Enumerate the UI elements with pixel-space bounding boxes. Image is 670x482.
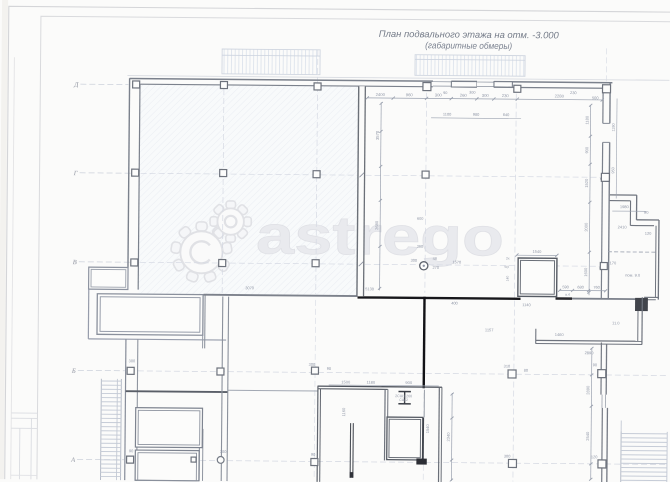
svg-text:1160: 1160 bbox=[341, 407, 346, 416]
svg-text:1540: 1540 bbox=[425, 424, 430, 434]
svg-text:400: 400 bbox=[451, 301, 458, 306]
svg-text:1540: 1540 bbox=[532, 249, 542, 254]
svg-text:980: 980 bbox=[473, 112, 480, 117]
svg-text:1140: 1140 bbox=[522, 302, 531, 307]
svg-text:в.4: в.4 bbox=[565, 293, 570, 297]
svg-text:140: 140 bbox=[506, 276, 510, 282]
svg-text:3070: 3070 bbox=[245, 285, 255, 290]
svg-text:(габаритные обмеры): (габаритные обмеры) bbox=[425, 40, 512, 51]
svg-text:1180: 1180 bbox=[612, 123, 616, 131]
svg-text:щу: щу bbox=[505, 264, 510, 268]
svg-text:270: 270 bbox=[433, 265, 440, 270]
svg-text:960: 960 bbox=[406, 92, 414, 97]
svg-text:300: 300 bbox=[411, 258, 418, 263]
svg-text:1460: 1460 bbox=[555, 332, 565, 337]
svg-text:2000: 2000 bbox=[583, 222, 588, 232]
svg-text:2540: 2540 bbox=[585, 431, 590, 441]
svg-text:680: 680 bbox=[577, 285, 584, 290]
svg-text:590: 590 bbox=[562, 284, 569, 289]
svg-text:1980: 1980 bbox=[620, 204, 630, 209]
svg-text:760: 760 bbox=[593, 285, 600, 290]
svg-text:300: 300 bbox=[129, 358, 136, 363]
svg-text:1180: 1180 bbox=[366, 380, 375, 385]
svg-text:260: 260 bbox=[460, 93, 468, 98]
svg-text:5130: 5130 bbox=[365, 286, 375, 291]
svg-text:1500: 1500 bbox=[341, 379, 351, 384]
svg-text:2280: 2280 bbox=[555, 94, 565, 99]
svg-text:46: 46 bbox=[433, 256, 437, 261]
svg-text:2340: 2340 bbox=[446, 432, 451, 442]
svg-text:360: 360 bbox=[417, 244, 424, 249]
svg-text:900: 900 bbox=[584, 146, 589, 153]
svg-text:2890: 2890 bbox=[585, 350, 595, 355]
svg-text:2410: 2410 bbox=[618, 224, 628, 229]
svg-text:300: 300 bbox=[435, 92, 443, 97]
svg-text:2170: 2170 bbox=[607, 260, 617, 265]
svg-text:120: 120 bbox=[591, 454, 598, 459]
svg-text:1570: 1570 bbox=[452, 259, 462, 264]
svg-text:1157: 1157 bbox=[485, 327, 494, 332]
svg-text:90: 90 bbox=[443, 91, 447, 95]
svg-text:640: 640 bbox=[503, 112, 510, 117]
svg-text:2890: 2890 bbox=[585, 385, 590, 395]
svg-text:1180: 1180 bbox=[584, 115, 589, 124]
svg-text:Б: Б bbox=[71, 368, 76, 375]
svg-text:900: 900 bbox=[405, 380, 412, 385]
svg-text:2680: 2680 bbox=[374, 220, 379, 230]
svg-text:СЩ-2: СЩ-2 bbox=[399, 398, 408, 402]
svg-text:230: 230 bbox=[570, 90, 577, 95]
svg-text:В: В bbox=[73, 259, 77, 266]
svg-text:План подвального этажа на отм.: План подвального этажа на отм. -3.000 bbox=[379, 28, 560, 41]
svg-text:300: 300 bbox=[469, 91, 475, 95]
svg-text:950: 950 bbox=[611, 167, 615, 173]
svg-text:пом. 9.0: пом. 9.0 bbox=[625, 273, 641, 278]
svg-text:2400: 2400 bbox=[376, 92, 386, 97]
svg-text:300: 300 bbox=[482, 93, 490, 98]
svg-text:600: 600 bbox=[417, 217, 423, 221]
svg-text:1600: 1600 bbox=[583, 267, 588, 277]
svg-text:Г: Г bbox=[73, 170, 78, 177]
svg-text:3570: 3570 bbox=[375, 130, 380, 140]
svg-text:300: 300 bbox=[309, 362, 316, 367]
svg-text:300: 300 bbox=[504, 453, 511, 458]
svg-text:А: А bbox=[70, 457, 75, 464]
svg-text:120: 120 bbox=[645, 231, 652, 236]
svg-text:1520: 1520 bbox=[584, 178, 589, 188]
svg-text:1100: 1100 bbox=[443, 112, 452, 117]
svg-text:310: 310 bbox=[504, 363, 511, 368]
svg-text:Д: Д bbox=[73, 82, 79, 89]
svg-text:300: 300 bbox=[220, 449, 227, 454]
svg-text:500: 500 bbox=[592, 95, 599, 100]
svg-text:2x: 2x bbox=[506, 256, 510, 260]
svg-text:230: 230 bbox=[502, 93, 510, 98]
svg-text:11.0: 11.0 bbox=[612, 320, 620, 325]
